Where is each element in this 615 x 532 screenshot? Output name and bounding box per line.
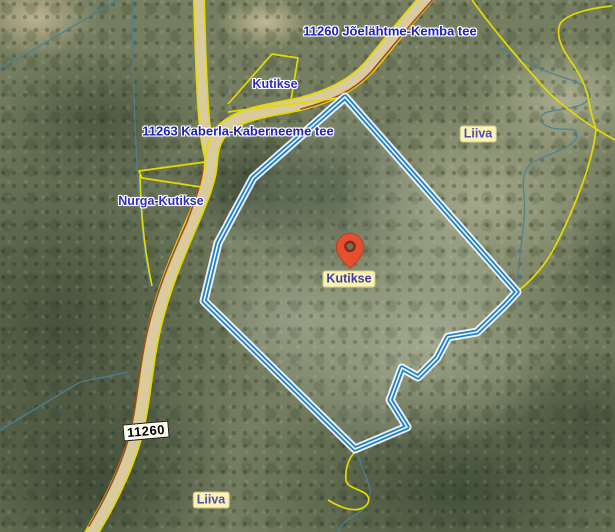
marker-label-kutikse: Kutikse — [323, 272, 374, 287]
map-line-layers — [0, 0, 615, 532]
road-label-11260-joelahtme-kemba-tee: 11260 Jõelähtme-Kemba tee — [303, 24, 476, 39]
place-label-liiva-south: Liiva — [194, 493, 229, 508]
place-label-liiva-east: Liiva — [461, 127, 496, 142]
road-label-11263-kaberla-kaberneeme-tee: 11263 Kaberla-Kaberneeme tee — [142, 124, 334, 139]
place-label-kutikse-north: Kutikse — [252, 77, 297, 91]
place-label-nurga-kutikse: Nurga-Kutikse — [118, 194, 203, 208]
map-viewport[interactable]: 11260 Jõelähtme-Kemba tee Kutikse 11263 … — [0, 0, 615, 532]
location-pin-icon[interactable] — [335, 230, 365, 272]
